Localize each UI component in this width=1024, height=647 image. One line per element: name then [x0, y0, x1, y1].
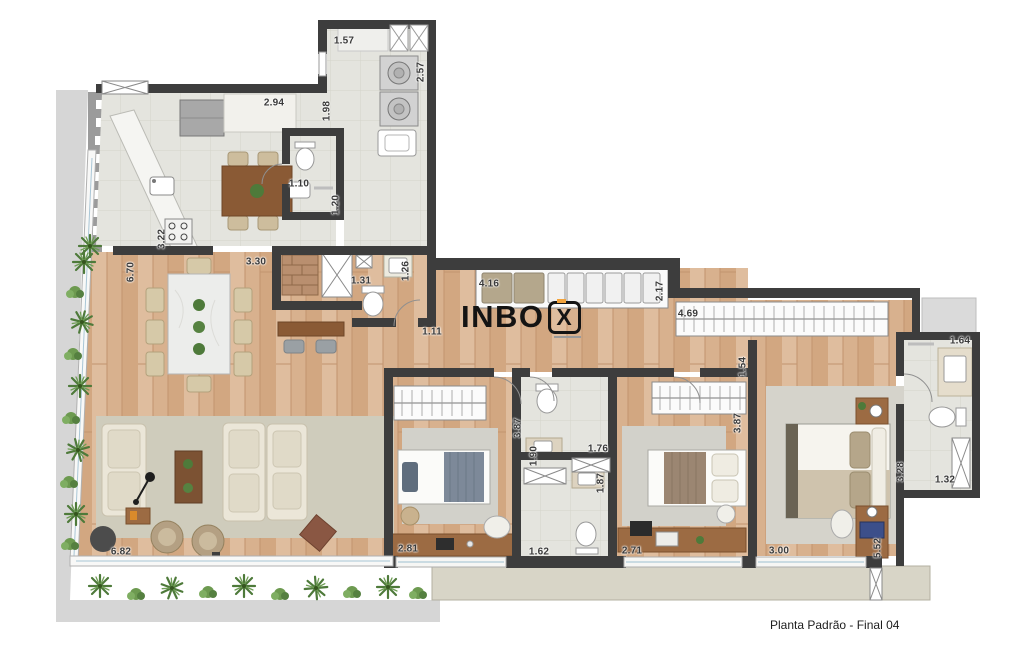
dimension-label: 2.94: [264, 98, 284, 109]
basket: [401, 507, 419, 525]
dimension-label: 6.82: [111, 547, 131, 558]
toilet: [929, 407, 955, 427]
dimension-label: 1.32: [935, 475, 955, 486]
master-wardrobe: [676, 302, 888, 336]
master-bed: [786, 424, 890, 518]
desk-plant: [696, 536, 704, 544]
logo-x-box: X: [548, 301, 581, 334]
dimension-label: 2.81: [398, 544, 418, 555]
dimension-label: 1.31: [351, 276, 371, 287]
dimension-label: 2.17: [655, 281, 666, 301]
dimension-label: 1.11: [422, 327, 442, 338]
dimension-label: 2.71: [622, 546, 642, 557]
dimension-label: 3.00: [769, 546, 789, 557]
dimension-label: 3.28: [896, 462, 907, 482]
bedroom2-bed: [648, 450, 746, 506]
dimension-label: 2.57: [416, 62, 427, 82]
kitchen-cabinet: [224, 94, 296, 132]
dimension-label: 1.54: [738, 357, 749, 377]
dimension-label: 1.64: [950, 336, 970, 347]
dimension-label: 5.52: [873, 538, 884, 558]
window: [319, 52, 326, 76]
dimension-label: 3.87: [513, 418, 524, 438]
logo-x: X: [556, 306, 571, 329]
laptop: [656, 532, 678, 546]
side-table: [717, 505, 735, 523]
balcony-strip: [432, 566, 930, 600]
dimension-label: 6.70: [126, 262, 137, 282]
dimension-label: 1.57: [334, 36, 354, 47]
dimension-label: 3.87: [733, 413, 744, 433]
dimension-label: 1.90: [529, 446, 540, 466]
desk-chair: [484, 516, 510, 538]
dimension-label: 1.20: [331, 195, 342, 215]
dimension-label: 1.98: [322, 101, 333, 121]
bedroom1: [390, 428, 516, 556]
brick-shaft: [282, 255, 318, 295]
bedroom2-wardrobe: [652, 382, 746, 414]
coffee-table: [175, 451, 202, 503]
desk-chair: [831, 510, 853, 538]
sink: [944, 356, 966, 382]
dimension-label: 3.22: [157, 229, 168, 249]
logo-tagline-bar: [554, 336, 581, 338]
dimension-label: 1.26: [401, 261, 412, 281]
dimension-label: 4.69: [678, 309, 698, 320]
dimension-label: 1.62: [529, 547, 549, 558]
dimension-label: 1.10: [289, 179, 309, 190]
lavabo-toilet: [363, 292, 383, 316]
laptop: [436, 538, 454, 550]
dimension-label: 4.16: [479, 279, 499, 290]
bedroom1-bed: [398, 450, 490, 504]
toilet: [576, 522, 596, 546]
laptop: [860, 522, 884, 538]
sofa-pair: [223, 423, 307, 521]
books: [130, 511, 137, 520]
sofa-left: [102, 424, 146, 516]
inbox-logo: INBO X: [461, 301, 581, 334]
nightstand: [856, 398, 888, 424]
plan-caption: Planta Padrão - Final 04: [770, 618, 899, 632]
dimension-label: 1.87: [596, 473, 607, 493]
laundry-tank: [378, 130, 416, 156]
bedroom1-wardrobe: [394, 386, 486, 420]
stove: [165, 219, 192, 244]
side-table: [126, 508, 150, 524]
parapet: [922, 298, 976, 334]
dimension-label: 3.30: [246, 257, 266, 268]
dimension-label: 1.76: [588, 444, 608, 455]
logo-accent-mark: [557, 299, 566, 303]
printer: [630, 521, 652, 536]
sink: [578, 473, 596, 485]
toilet: [296, 148, 314, 170]
logo-text: INBO: [461, 301, 545, 332]
master-bedroom: [766, 386, 904, 558]
floorplan-canvas: 1.572.572.941.981.101.203.226.703.301.31…: [0, 0, 1024, 647]
